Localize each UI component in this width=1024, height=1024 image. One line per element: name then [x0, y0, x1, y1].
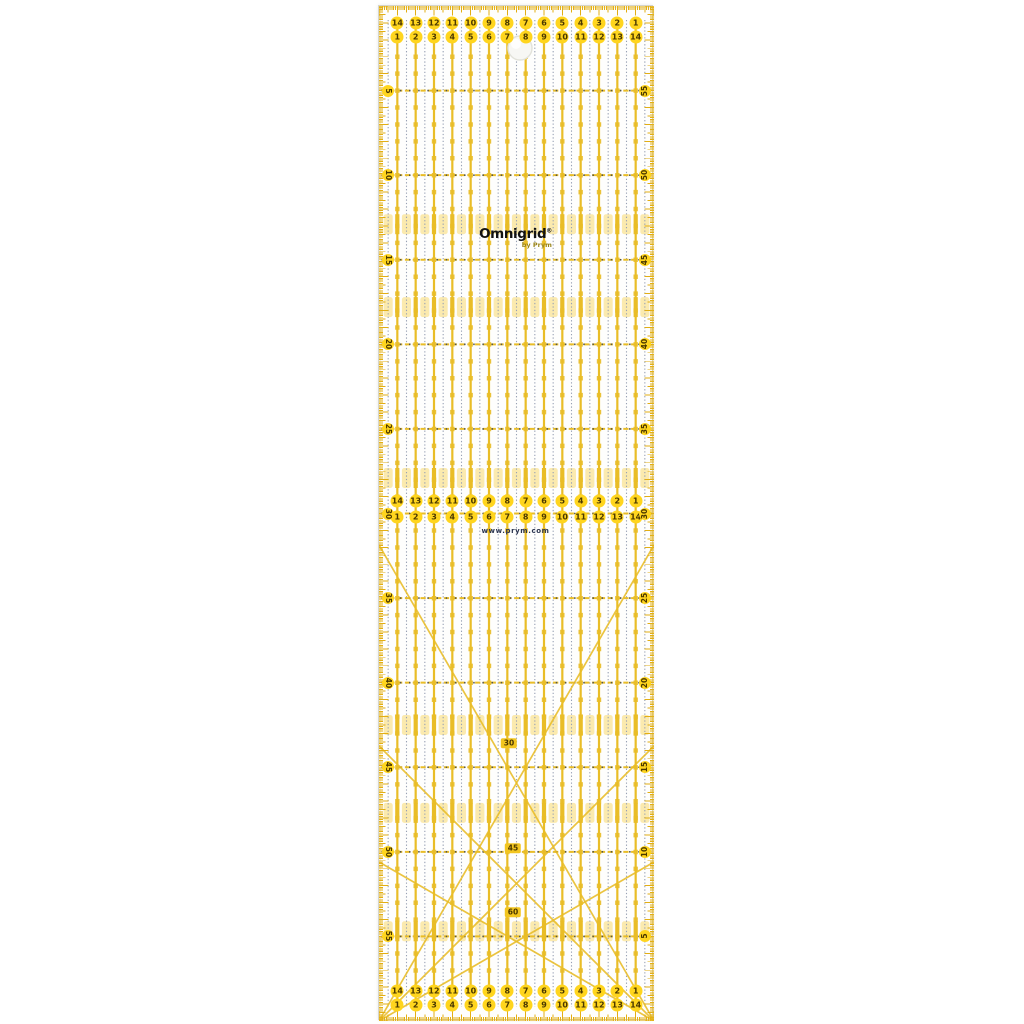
- website-url: www.prym.com: [379, 528, 652, 535]
- scale-number: 12: [428, 495, 441, 508]
- edge-number-left: 40: [382, 677, 394, 689]
- scale-number: 3: [428, 999, 441, 1012]
- scale-number: 13: [611, 31, 624, 44]
- scale-number: 9: [483, 985, 496, 998]
- edge-number-right: 15: [639, 761, 651, 773]
- scale-number: 10: [464, 985, 477, 998]
- scale-number: 13: [611, 999, 624, 1012]
- scale-number: 9: [483, 17, 496, 30]
- scale-number: 9: [538, 999, 551, 1012]
- angle-label: 60: [505, 907, 521, 917]
- scale-number: 9: [538, 511, 551, 524]
- scale-number: 12: [593, 999, 606, 1012]
- scale-number: 4: [574, 495, 587, 508]
- brand-byline: by Prym: [479, 242, 552, 249]
- scale-number: 8: [519, 999, 532, 1012]
- scale-number: 5: [464, 31, 477, 44]
- scale-number: 2: [409, 511, 422, 524]
- scale-number: 6: [483, 511, 496, 524]
- scale-number: 7: [519, 17, 532, 30]
- scale-number: 10: [464, 17, 477, 30]
- scale-number: 12: [593, 511, 606, 524]
- edge-number-left: 55: [382, 930, 394, 942]
- scale-number: 1: [391, 999, 404, 1012]
- scale-number: 9: [538, 31, 551, 44]
- scale-number: 4: [574, 985, 587, 998]
- edge-number-right: 25: [639, 592, 651, 604]
- edge-number-left: 45: [382, 761, 394, 773]
- edge-number-left: 50: [382, 846, 394, 858]
- edge-number-left: 35: [382, 592, 394, 604]
- scale-number: 10: [556, 31, 569, 44]
- scale-number: 10: [464, 495, 477, 508]
- scale-number: 8: [501, 17, 514, 30]
- scale-number: 10: [556, 999, 569, 1012]
- scale-number: 12: [428, 17, 441, 30]
- scale-number: 14: [391, 17, 404, 30]
- edge-number-left: 5: [382, 85, 394, 97]
- brand-logo: Omnigrid® by Prym: [379, 225, 652, 250]
- scale-number: 8: [501, 495, 514, 508]
- scale-number: 11: [446, 495, 459, 508]
- scale-number: 12: [428, 985, 441, 998]
- scale-number: 6: [483, 999, 496, 1012]
- edge-number-right: 50: [639, 169, 651, 181]
- quilting-ruler: 1413121110987654321123456789101112131414…: [378, 5, 653, 1020]
- edge-number-right: 5: [639, 930, 651, 942]
- scale-number: 11: [446, 985, 459, 998]
- scale-number: 5: [464, 511, 477, 524]
- scale-number: 3: [428, 511, 441, 524]
- scale-number: 4: [446, 31, 459, 44]
- scale-number: 14: [391, 985, 404, 998]
- scale-number: 7: [519, 495, 532, 508]
- edge-number-right: 40: [639, 338, 651, 350]
- scale-number: 1: [629, 985, 642, 998]
- scale-number: 3: [593, 495, 606, 508]
- scale-number: 8: [519, 511, 532, 524]
- edge-number-right: 45: [639, 254, 651, 266]
- scale-number: 4: [446, 999, 459, 1012]
- scale-number: 2: [611, 17, 624, 30]
- scale-number: 6: [538, 17, 551, 30]
- scale-number: 1: [629, 17, 642, 30]
- scale-number: 6: [483, 31, 496, 44]
- scale-number: 14: [391, 495, 404, 508]
- scale-number: 5: [556, 495, 569, 508]
- edge-number-left: 10: [382, 169, 394, 181]
- scale-number: 11: [574, 999, 587, 1012]
- scale-number: 9: [483, 495, 496, 508]
- scale-number: 2: [409, 31, 422, 44]
- scale-number: 7: [501, 511, 514, 524]
- scale-number: 3: [428, 31, 441, 44]
- scale-number: 13: [409, 985, 422, 998]
- scale-number: 6: [538, 985, 551, 998]
- edge-number-left: 25: [382, 423, 394, 435]
- edge-number-right: 35: [639, 423, 651, 435]
- scale-number: 2: [409, 999, 422, 1012]
- scale-number: 4: [446, 511, 459, 524]
- edge-number-left: 20: [382, 338, 394, 350]
- scale-number: 13: [409, 495, 422, 508]
- scale-number: 3: [593, 985, 606, 998]
- scale-number: 11: [446, 17, 459, 30]
- scale-number: 2: [611, 985, 624, 998]
- edge-number-left: 30: [382, 508, 394, 520]
- scale-number: 1: [629, 495, 642, 508]
- scale-number: 10: [556, 511, 569, 524]
- brand-name: Omnigrid®: [479, 226, 552, 242]
- scale-number: 14: [629, 999, 642, 1012]
- scale-number: 7: [501, 999, 514, 1012]
- edge-number-right: 20: [639, 677, 651, 689]
- edge-number-right: 30: [639, 508, 651, 520]
- scale-number: 11: [574, 511, 587, 524]
- scale-number: 13: [409, 17, 422, 30]
- scale-number: 3: [593, 17, 606, 30]
- scale-number: 12: [593, 31, 606, 44]
- product-photo: 1413121110987654321123456789101112131414…: [0, 0, 1024, 1024]
- scale-number: 14: [629, 31, 642, 44]
- ruler-numbers: 1413121110987654321123456789101112131414…: [379, 6, 652, 1019]
- scale-number: 7: [519, 985, 532, 998]
- scale-number: 5: [556, 17, 569, 30]
- scale-number: 8: [501, 985, 514, 998]
- edge-number-left: 15: [382, 254, 394, 266]
- edge-number-right: 10: [639, 846, 651, 858]
- trademark-symbol: ®: [546, 228, 552, 235]
- edge-number-right: 55: [639, 85, 651, 97]
- scale-number: 5: [556, 985, 569, 998]
- scale-number: 8: [519, 31, 532, 44]
- scale-number: 4: [574, 17, 587, 30]
- scale-number: 2: [611, 495, 624, 508]
- scale-number: 7: [501, 31, 514, 44]
- scale-number: 11: [574, 31, 587, 44]
- scale-number: 1: [391, 31, 404, 44]
- scale-number: 5: [464, 999, 477, 1012]
- angle-label: 30: [501, 738, 517, 748]
- angle-label: 45: [505, 843, 521, 853]
- scale-number: 13: [611, 511, 624, 524]
- scale-number: 6: [538, 495, 551, 508]
